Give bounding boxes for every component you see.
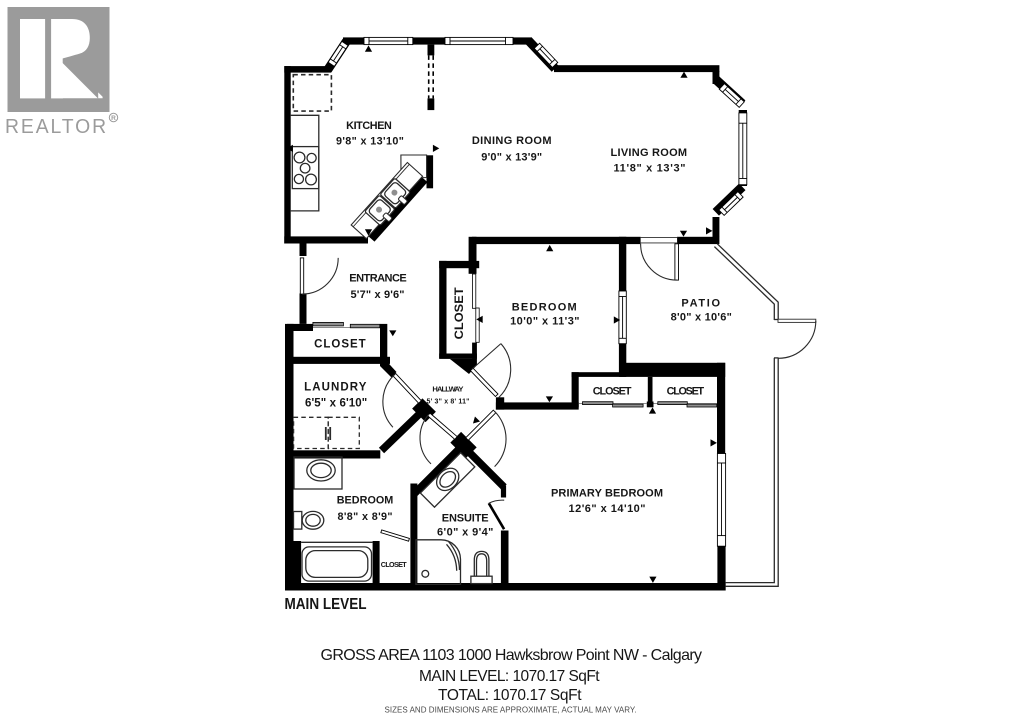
svg-text:BEDROOM: BEDROOM [512, 302, 577, 314]
svg-text:BEDROOM: BEDROOM [337, 495, 394, 507]
svg-text:CLOSET: CLOSET [667, 386, 705, 398]
svg-text:6'0" x 9'4": 6'0" x 9'4" [437, 526, 493, 538]
svg-text:REALTOR: REALTOR [5, 115, 108, 138]
svg-text:11'8" x 13'3": 11'8" x 13'3" [614, 163, 686, 175]
svg-text:GROSS AREA 1103 1000 Hawksbrow: GROSS AREA 1103 1000 Hawksbrow Point NW … [321, 647, 703, 664]
svg-text:5' 3" x 8' 11": 5' 3" x 8' 11" [427, 398, 470, 405]
svg-text:DINING ROOM: DINING ROOM [472, 135, 552, 147]
svg-text:6'5" x 6'10": 6'5" x 6'10" [305, 398, 367, 410]
svg-text:9'0" x 13'9": 9'0" x 13'9" [481, 152, 542, 164]
svg-text:CLOSET: CLOSET [454, 287, 466, 339]
svg-text:CLOSET: CLOSET [593, 386, 632, 398]
svg-text:HALLWAY: HALLWAY [432, 385, 463, 394]
svg-text:5'7" x 9'6": 5'7" x 9'6" [351, 289, 405, 301]
svg-text:SIZES AND DIMENSIONS ARE APPRO: SIZES AND DIMENSIONS ARE APPROXIMATE, AC… [385, 706, 637, 715]
svg-text:R: R [111, 115, 116, 122]
svg-text:PRIMARY BEDROOM: PRIMARY BEDROOM [551, 488, 663, 500]
svg-text:9'8" x 13'10": 9'8" x 13'10" [336, 136, 404, 148]
svg-text:MAIN LEVEL: 1070.17 SqFt: MAIN LEVEL: 1070.17 SqFt [419, 668, 600, 685]
svg-text:8'8" x 8'9": 8'8" x 8'9" [337, 511, 392, 523]
svg-text:ENTRANCE: ENTRANCE [349, 273, 407, 285]
svg-text:10'0" x 11'3": 10'0" x 11'3" [510, 315, 579, 327]
svg-text:CLOSET: CLOSET [381, 560, 407, 569]
svg-text:LIVING ROOM: LIVING ROOM [611, 147, 688, 159]
svg-text:TOTAL: 1070.17 SqFt: TOTAL: 1070.17 SqFt [438, 687, 582, 704]
svg-text:PATIO: PATIO [681, 298, 720, 310]
svg-text:CLOSET: CLOSET [314, 338, 366, 350]
svg-text:LAUNDRY: LAUNDRY [304, 381, 367, 393]
svg-text:8'0" x 10'6": 8'0" x 10'6" [671, 312, 732, 324]
svg-text:KITCHEN: KITCHEN [346, 120, 392, 132]
svg-text:12'6" x 14'10": 12'6" x 14'10" [569, 503, 646, 515]
svg-text:ENSUITE: ENSUITE [442, 513, 489, 525]
svg-text:MAIN LEVEL: MAIN LEVEL [285, 596, 367, 613]
